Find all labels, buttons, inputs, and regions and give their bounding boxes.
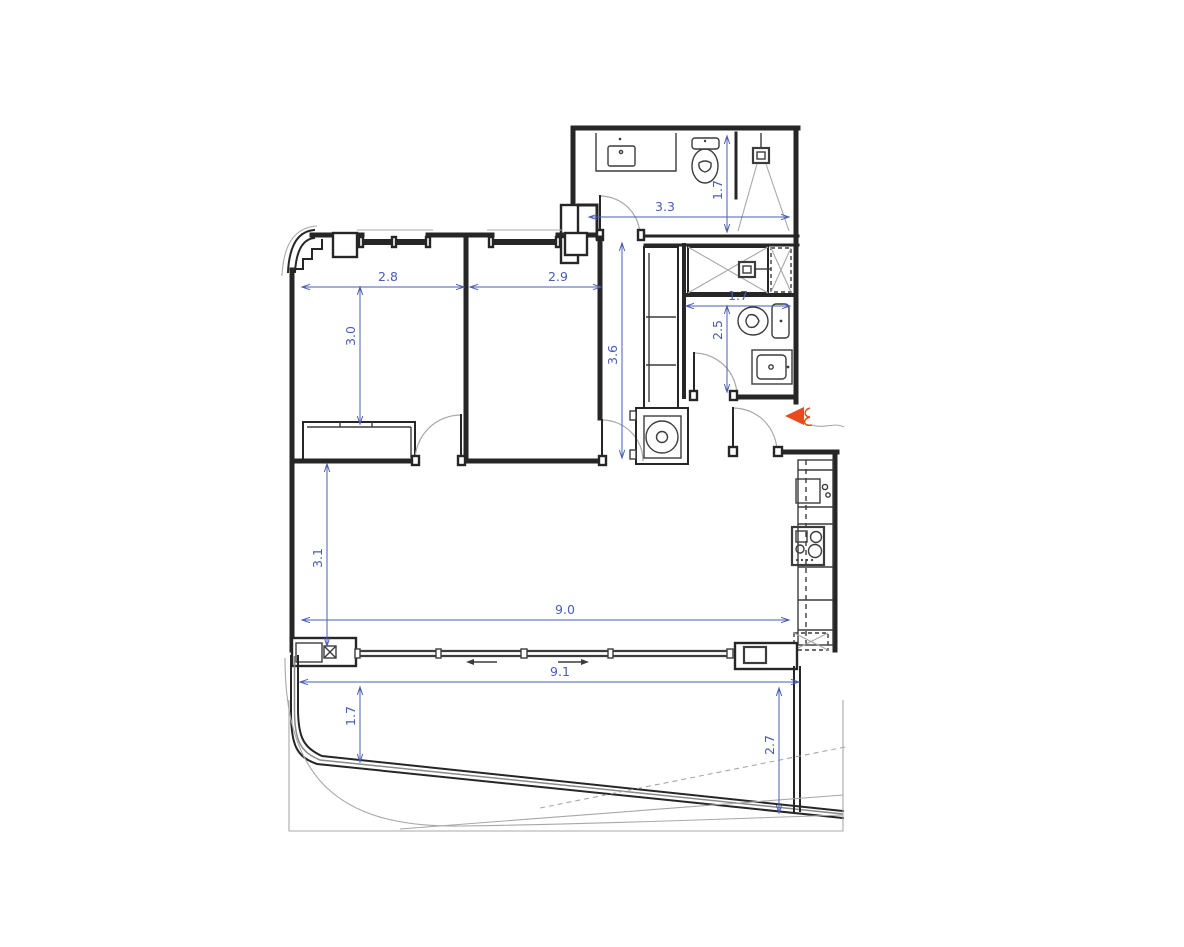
floorplan-svg: 3.31.72.82.93.03.61.72.59.03.19.11.72.7	[0, 0, 1184, 947]
entrance-arrow-icon	[785, 407, 844, 427]
shower-icon	[688, 247, 771, 293]
dimension-label-bath1-depth: 1.7	[710, 180, 725, 200]
column-box	[333, 233, 357, 257]
pier-left	[292, 638, 356, 666]
dimension-label-balcony-width: 9.1	[550, 664, 570, 679]
sink-icon	[596, 133, 676, 171]
shaft-hatch	[771, 248, 791, 292]
bedroom-1-door	[412, 415, 465, 465]
kitchen-sink-icon	[796, 479, 830, 503]
dimension-label-bedroom1-depth: 3.0	[343, 326, 358, 346]
bathroom-2	[684, 245, 796, 400]
cooktop-icon	[792, 527, 824, 565]
column-hatch	[794, 633, 828, 650]
dimension-label-bath1-width: 3.3	[655, 199, 675, 214]
sliding-door	[355, 649, 733, 665]
window	[357, 230, 433, 247]
dimension-label-living-width: 9.0	[555, 602, 575, 617]
kitchen	[792, 460, 833, 650]
window	[487, 230, 563, 247]
toilet-icon	[738, 304, 789, 338]
bathroom-1-door	[597, 196, 644, 240]
sink-icon	[752, 350, 792, 384]
dimension-label-bedroom2-width: 2.9	[548, 269, 568, 284]
desk	[303, 422, 415, 462]
bathroom-2-door	[690, 353, 737, 400]
dimension-label-bedroom1-width: 2.8	[378, 269, 398, 284]
floorplan-canvas: 3.31.72.82.93.03.61.72.59.03.19.11.72.7	[0, 0, 1184, 947]
dimension-label-bath2-width: 1.7	[728, 288, 748, 303]
bedroom-1	[303, 230, 466, 465]
entrance-door	[729, 408, 782, 456]
bathroom-1	[596, 133, 789, 240]
dimension-layer: 3.31.72.82.93.03.61.72.59.03.19.11.72.7	[300, 136, 799, 813]
entrance	[729, 407, 844, 456]
dimension-label-balcony-depth-right: 2.7	[762, 735, 777, 755]
dimension-label-hall-length: 3.6	[605, 345, 620, 365]
living-room	[292, 638, 797, 669]
washing-machine-icon	[630, 408, 688, 464]
dimension-label-bath2-depth: 2.5	[710, 320, 725, 340]
wardrobe	[644, 247, 678, 408]
shower-icon	[736, 133, 789, 231]
pier-right	[735, 643, 797, 669]
column-box	[565, 233, 587, 255]
toilet-icon	[692, 138, 719, 183]
dimension-label-balcony-depth-left: 1.7	[343, 706, 358, 726]
exterior-walls	[282, 128, 837, 650]
hallway	[630, 247, 688, 464]
dimension-label-living-depth: 3.1	[310, 548, 325, 568]
slide-arrow-left-icon	[466, 659, 497, 665]
